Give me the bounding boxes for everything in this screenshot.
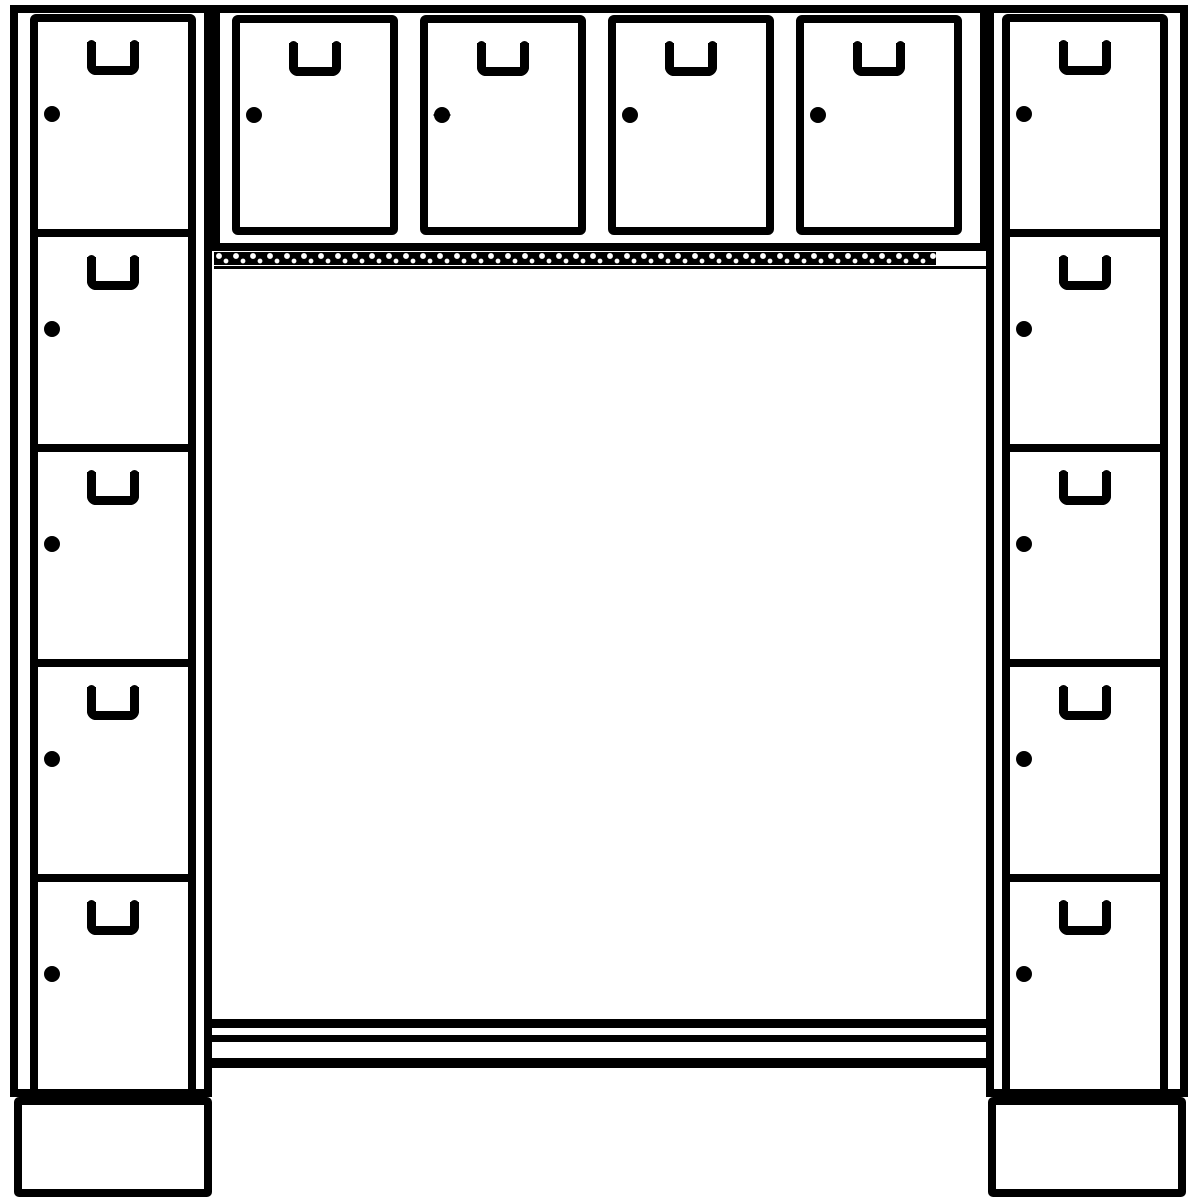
recessed-grip-handle-icon (1059, 687, 1111, 720)
overhead-locker-door (796, 15, 962, 235)
locker-compartment-door (1010, 237, 1160, 452)
plinth-base-left (14, 1097, 212, 1197)
overhead-locker-door (232, 15, 398, 235)
recessed-grip-handle-icon (1059, 902, 1111, 935)
locker-compartment-door (38, 452, 188, 667)
locker-compartment-door (1010, 667, 1160, 882)
bench-seat-rail-1 (212, 1019, 988, 1028)
recessed-grip-handle-icon (87, 902, 139, 935)
recessed-grip-handle-icon (1059, 472, 1111, 505)
overhead-locker-door (608, 15, 774, 235)
recessed-grip-handle-icon (665, 43, 717, 76)
recessed-grip-handle-icon (289, 43, 341, 76)
cam-lock-icon (44, 106, 60, 122)
right-locker-column-door-stack (1002, 14, 1168, 1097)
hook-rail-baseline (214, 266, 988, 269)
recessed-grip-handle-icon (87, 42, 139, 75)
locker-compartment-door (38, 22, 188, 237)
recessed-grip-handle-icon (87, 472, 139, 505)
cam-lock-icon (810, 107, 826, 123)
cam-lock-icon (44, 321, 60, 337)
locker-compartment-door (1010, 22, 1160, 237)
cam-lock-icon (44, 751, 60, 767)
recessed-grip-handle-icon (477, 43, 529, 76)
locker-compartment-door (1010, 452, 1160, 667)
cam-lock-icon (1016, 536, 1032, 552)
cam-lock-icon (1016, 966, 1032, 982)
recessed-grip-handle-icon (87, 687, 139, 720)
coat-hook-rail (214, 252, 936, 265)
recessed-grip-handle-icon (87, 257, 139, 290)
cam-lock-icon (44, 966, 60, 982)
cam-lock-icon (1016, 321, 1032, 337)
overhead-locker-door (420, 15, 586, 235)
recessed-grip-handle-icon (1059, 42, 1111, 75)
locker-compartment-door (38, 667, 188, 882)
bench-seat-rail-2 (212, 1035, 988, 1042)
cam-lock-icon (1016, 751, 1032, 767)
locker-compartment-door (38, 237, 188, 452)
rosette-cam-lock-icon (434, 107, 450, 123)
cam-lock-icon (246, 107, 262, 123)
cam-lock-icon (44, 536, 60, 552)
recessed-grip-handle-icon (853, 43, 905, 76)
cam-lock-icon (1016, 106, 1032, 122)
cam-lock-icon (622, 107, 638, 123)
left-locker-column-door-stack (30, 14, 196, 1097)
recessed-grip-handle-icon (1059, 257, 1111, 290)
plinth-base-right (988, 1097, 1186, 1197)
locker-compartment-door (38, 882, 188, 1089)
locker-unit-line-drawing (0, 0, 1200, 1200)
locker-compartment-door (1010, 882, 1160, 1089)
bench-seat-rail-3 (212, 1058, 988, 1068)
